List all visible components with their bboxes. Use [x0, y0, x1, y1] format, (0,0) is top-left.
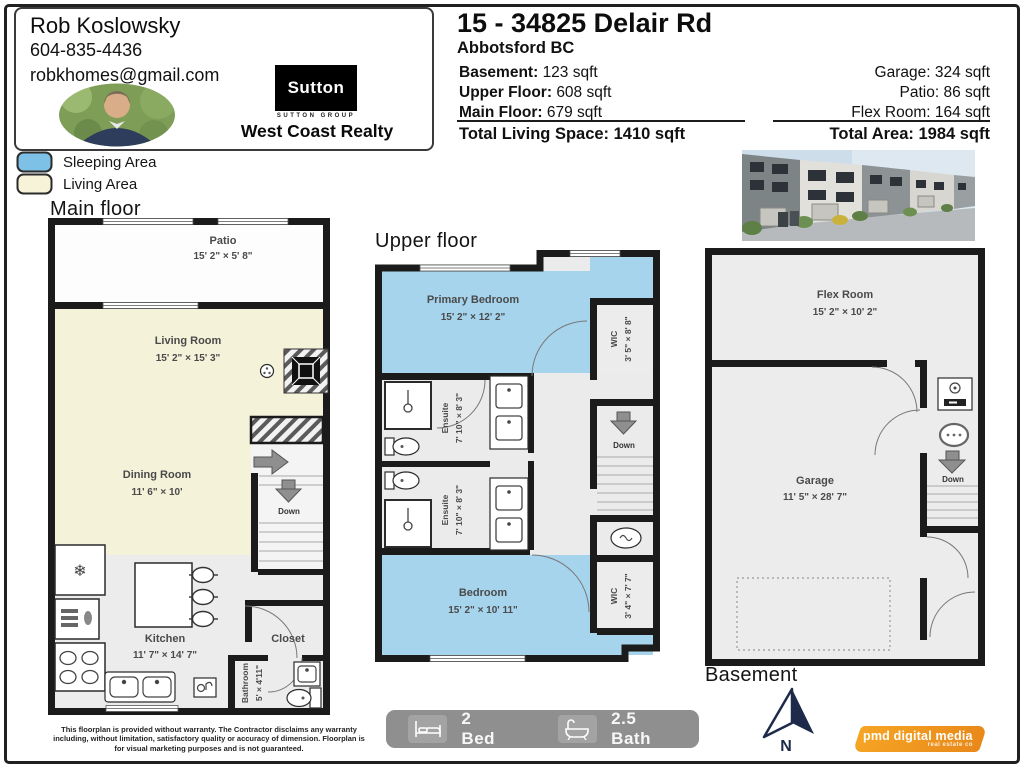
room-label-bathroom: Bathroom — [240, 662, 250, 703]
fireplace-icon — [284, 349, 328, 393]
room-dims-bathroom: 5' × 4'11" — [254, 665, 264, 701]
room-dims-ensuite2: 7' 10" × 8' 3" — [454, 485, 464, 535]
water-tank-icon — [940, 424, 968, 446]
room-label-dining: Dining Room — [123, 469, 192, 481]
cooktop-icon — [55, 643, 105, 691]
room-label-ensuite1: Ensuite — [440, 402, 450, 433]
disclaimer: This floorplan is provided without warra… — [38, 725, 380, 753]
room-dims-primary: 15' 2" × 12' 2" — [441, 312, 506, 323]
total-living-space: Total Living Space: 1410 sqft — [459, 125, 685, 144]
room-dims-wic2: 3' 4" × 7' 7" — [623, 573, 633, 618]
credit-subtext: real estate co — [928, 742, 973, 748]
legend-sleeping: Sleeping Area — [16, 151, 156, 173]
room-dims-wic1: 3' 5" × 8' 8" — [623, 316, 633, 361]
room-label-wic2: WIC — [609, 588, 619, 605]
bath-icon — [558, 715, 597, 743]
room-label-flex: Flex Room — [817, 289, 873, 301]
room-dims-bedroom: 15' 2" × 10' 11" — [448, 605, 518, 616]
room-label-garage: Garage — [796, 475, 834, 487]
kitchen-island — [135, 563, 192, 627]
stairs-down-label: Down — [613, 441, 635, 450]
down-arrow-icon — [617, 412, 630, 421]
listing-city: Abbotsford BC — [457, 39, 574, 58]
basement-plan: Down Flex Room 15' 2" × 10' 2" Garage 11… — [705, 248, 985, 666]
washer-icon — [611, 528, 641, 548]
stairs-down-label: Down — [942, 475, 964, 484]
room-dims-dining: 11' 6" × 10' — [132, 487, 183, 498]
hatch-area — [251, 417, 323, 443]
oven-icon — [55, 599, 99, 639]
stat-patio: Patio: 86 sqft — [730, 84, 990, 104]
bath-count: 2.5 Bath — [611, 709, 677, 749]
room-label-closet: Closet — [271, 633, 305, 645]
credit-logo: pmd digital media real estate co — [853, 726, 987, 754]
upper-floor-plan: Down Primary Bedroom 15' 2" × 12' 2" WIC… — [375, 250, 660, 672]
agent-phone: 604-835-4436 — [30, 40, 142, 61]
stairs-down-label: Down — [278, 507, 300, 516]
down-arrow-icon — [946, 451, 959, 460]
main-floor-plan: ❄ — [48, 218, 330, 715]
stat-garage: Garage: 324 sqft — [730, 64, 990, 84]
svg-text:❄: ❄ — [73, 563, 86, 580]
compass-n-label: N — [780, 738, 792, 755]
legend-living: Living Area — [16, 173, 137, 195]
agent-card: Rob Koslowsky 604-835-4436 robkhomes@gma… — [14, 7, 434, 151]
total-area: Total Area: 1984 sqft — [830, 125, 990, 144]
room-dims-flex: 15' 2" × 10' 2" — [813, 307, 878, 318]
stat-upper-floor: Upper Floor: 608 sqft — [459, 84, 759, 104]
legend-living-label: Living Area — [63, 176, 137, 193]
legend-sleeping-swatch — [16, 151, 53, 173]
sutton-group-text: SUTTON GROUP — [265, 113, 367, 119]
room-label-ensuite2: Ensuite — [440, 494, 450, 525]
room-dims-living: 15' 2" × 15' 3" — [156, 353, 221, 364]
divider-right — [773, 120, 990, 122]
room-dims-garage: 11' 5" × 28' 7" — [783, 492, 847, 503]
room-label-primary: Primary Bedroom — [427, 294, 520, 306]
agent-name: Rob Koslowsky — [30, 13, 180, 39]
room-dims-kitchen: 11' 7" × 14' 7" — [133, 650, 197, 661]
bar-sink-icon — [194, 678, 216, 697]
down-arrow-icon — [282, 480, 295, 489]
stool-icon — [189, 568, 218, 627]
sutton-logo: Sutton — [275, 65, 357, 111]
room-label-patio: Patio — [210, 235, 237, 247]
sutton-logo-text: Sutton — [288, 78, 345, 98]
brokerage-name: West Coast Realty — [212, 121, 422, 142]
divider-left — [457, 120, 745, 122]
ceiling-fan-icon — [261, 365, 274, 378]
credit-text: pmd digital media — [863, 729, 977, 743]
room-dims-patio: 15' 2" × 5' 8" — [194, 251, 253, 262]
agent-photo — [58, 83, 176, 147]
bathroom-sink-icon — [294, 662, 320, 686]
room-dims-ensuite1: 7' 10" × 8' 3" — [454, 393, 464, 443]
legend-sleeping-label: Sleeping Area — [63, 154, 156, 171]
room-label-kitchen: Kitchen — [145, 633, 186, 645]
toilet-icon — [287, 688, 321, 708]
room-label-bedroom: Bedroom — [459, 587, 508, 599]
listing-address: 15 - 34825 Delair Rd — [457, 8, 712, 39]
legend-living-swatch — [16, 173, 53, 195]
listing-header: 15 - 34825 Delair Rd Abbotsford BC Basem… — [457, 8, 990, 148]
room-label-living: Living Room — [155, 335, 222, 347]
bed-count: 2 Bed — [461, 709, 507, 749]
bed-icon — [408, 715, 447, 743]
room-label-wic1: WIC — [609, 331, 619, 348]
stat-basement: Basement: 123 sqft — [459, 64, 759, 84]
north-arrow-icon: N — [752, 684, 826, 756]
water-heater-icon — [938, 378, 972, 410]
double-sink-icon — [105, 672, 175, 702]
fridge-icon: ❄ — [55, 545, 105, 595]
bed-bath-banner: 2 Bed 2.5 Bath — [386, 710, 699, 748]
property-photo — [742, 150, 975, 241]
